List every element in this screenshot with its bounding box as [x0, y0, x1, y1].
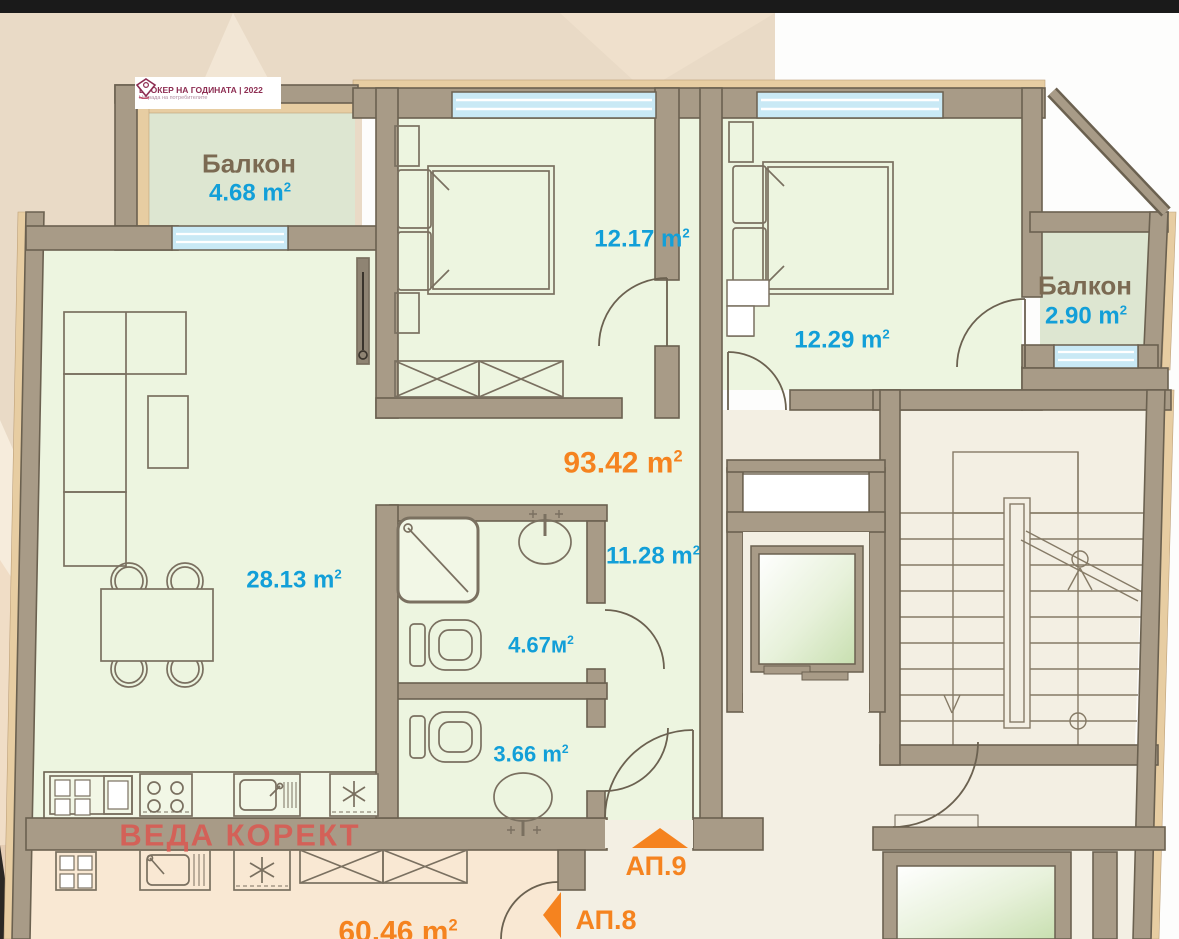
floor-plan-page: БРОКЕР НА ГОДИНАТА | 2022 Награда на пот… [0, 0, 1179, 939]
broker-award-badge: БРОКЕР НА ГОДИНАТА | 2022 Награда на пот… [135, 77, 281, 109]
neighbor-area: 60.46 m2 [338, 916, 457, 939]
ap8-left-arrow-icon [543, 892, 561, 938]
balcony-right-window [1054, 345, 1138, 368]
bathroom-area: 4.67м2 [508, 633, 574, 656]
living-room-area: 28.13 m2 [246, 567, 341, 592]
bedroom2-window [757, 92, 943, 118]
award-title: БРОКЕР НА ГОДИНАТА | 2022 [139, 85, 263, 95]
total-area: 93.42 m2 [563, 447, 682, 479]
wc-area: 3.66 m2 [493, 742, 568, 765]
stove-icon [140, 774, 192, 816]
kitchen-sink-icon [234, 774, 300, 816]
brand-watermark: ВЕДА КОРЕКТ [119, 820, 360, 853]
hallway-area: 11.28 m2 [606, 543, 700, 568]
bedroom2-area: 12.29 m2 [794, 327, 889, 352]
balcony-left-title: Балкон [202, 150, 296, 177]
ap9-label: АП.9 [625, 852, 686, 880]
balcony-left-area: 4.68 m2 [209, 180, 291, 205]
bedroom1-area: 12.17 m2 [594, 226, 689, 251]
pivot-door-panel [357, 258, 369, 364]
elevator-secondary [897, 866, 1055, 939]
ap8-label: АП.8 [575, 906, 636, 934]
balcony-left-window [172, 226, 288, 250]
balcony-right-area: 2.90 m2 [1045, 303, 1127, 328]
kitchen-counter [44, 772, 378, 818]
ap9-up-arrow-icon [632, 828, 688, 848]
fridge-icon [330, 774, 378, 816]
award-logo-icon [135, 77, 157, 99]
elevator-main [743, 474, 869, 712]
bedroom1-window [452, 92, 656, 118]
award-subtitle: Награда на потребителите [139, 95, 263, 102]
balcony-right-title: Балкон [1038, 272, 1132, 299]
